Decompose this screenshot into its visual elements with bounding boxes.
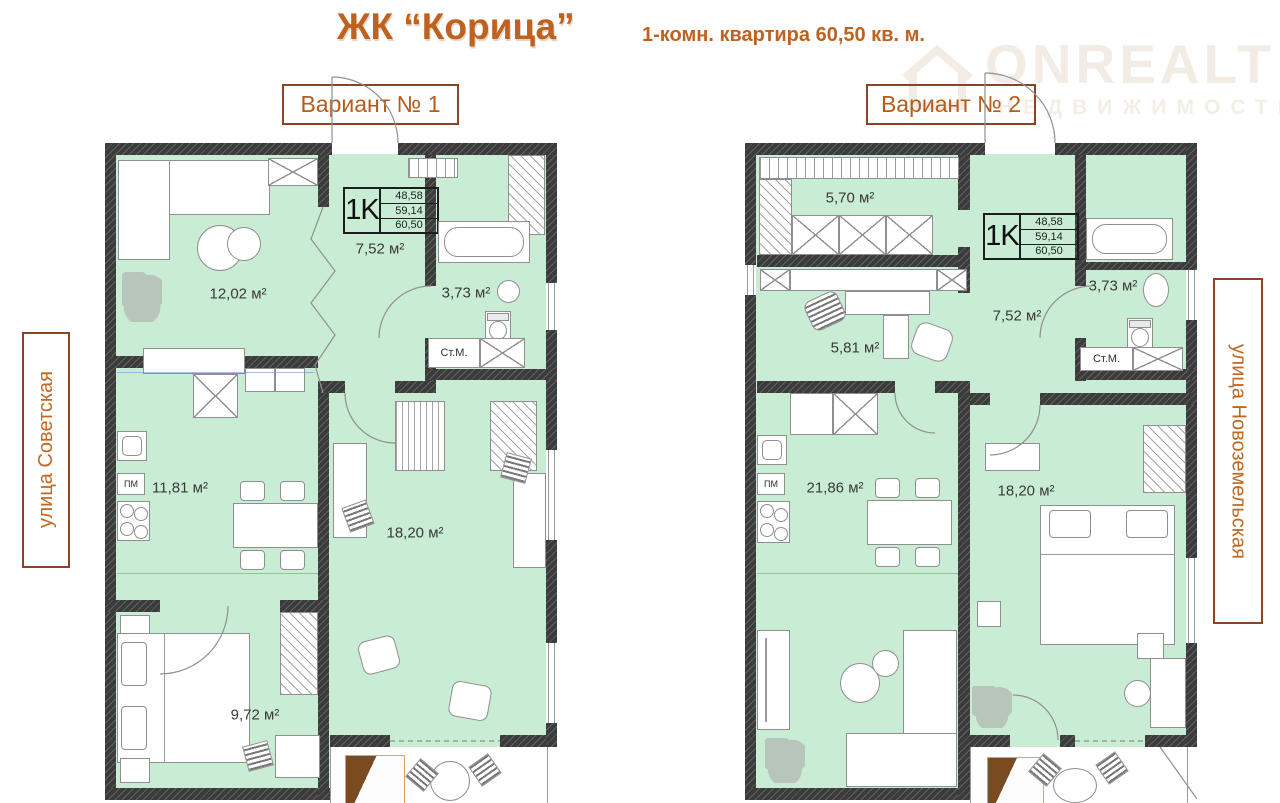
cabinet — [1133, 347, 1183, 371]
window — [745, 265, 756, 295]
blanket-line — [1041, 554, 1174, 555]
pillow — [121, 642, 147, 686]
chair — [240, 550, 265, 570]
wardrobe — [395, 401, 445, 471]
window — [1186, 270, 1197, 320]
wall — [1075, 262, 1197, 270]
variant-1-label-box: Вариант № 1 — [282, 84, 459, 125]
wall — [318, 381, 345, 393]
wall — [757, 381, 895, 393]
room-label-bathroom: 3,73 м² — [1089, 278, 1138, 295]
room-label-kitchen: 11,81 м² — [152, 480, 208, 497]
desk — [513, 473, 546, 568]
wall — [105, 143, 332, 155]
nightstand — [120, 758, 150, 783]
room-label-bedroom: 18,20 м² — [997, 483, 1054, 500]
stove — [757, 501, 790, 543]
wardrobe — [1143, 425, 1186, 493]
burner — [134, 525, 148, 539]
coat-rack — [408, 158, 458, 178]
room-label-room: 18,20 м² — [386, 525, 443, 542]
burner — [120, 522, 134, 536]
section-line — [757, 573, 958, 574]
section-line — [117, 573, 318, 574]
burner — [774, 508, 788, 522]
street-label-left: улица Советская — [22, 332, 70, 568]
cabinet — [937, 269, 967, 291]
cabinet — [760, 269, 790, 291]
desk — [275, 735, 320, 778]
coffee-table — [872, 650, 899, 677]
wardrobe — [280, 612, 318, 695]
balcony-table — [1053, 768, 1097, 803]
closet — [759, 179, 792, 255]
toilet — [1127, 318, 1153, 350]
cabinet — [268, 158, 318, 186]
wall — [105, 600, 160, 612]
plant — [972, 686, 1012, 728]
washing-machine: Ст.М. — [1080, 347, 1133, 371]
cabinet — [480, 338, 525, 368]
window — [1186, 558, 1197, 643]
area-value: 60,50 — [381, 218, 437, 232]
room-label-kitchen-living: 21,86 м² — [806, 480, 863, 497]
dishwasher: ПМ — [757, 473, 785, 495]
wardrobe — [792, 215, 839, 255]
chair — [280, 481, 305, 501]
tv-stand — [757, 630, 790, 730]
cabinet — [985, 443, 1040, 471]
variant-1-label: Вариант № 1 — [300, 91, 440, 118]
chair — [915, 547, 940, 567]
wardrobe — [886, 215, 933, 255]
wall — [105, 143, 116, 800]
blanket-line — [164, 634, 165, 762]
wall — [1060, 735, 1075, 747]
room-label-office: 5,81 м² — [831, 340, 880, 357]
street-right-text: улица Новоземельская — [1227, 344, 1250, 559]
wall — [1186, 143, 1197, 747]
wall — [958, 155, 970, 210]
street-label-right: улица Новоземельская — [1213, 278, 1263, 624]
room-label-bedroom: 9,72 м² — [231, 707, 280, 724]
wall — [970, 393, 990, 405]
kitchen-counter — [143, 348, 245, 374]
wall — [757, 255, 958, 267]
burner — [760, 504, 774, 518]
kitchen-counter — [790, 393, 833, 435]
wall — [935, 381, 970, 393]
floor-plan-variant-1: 1K 48,58 59,14 60,50 Ст.М. ПМ — [105, 143, 557, 803]
apartment-type: 1K — [985, 215, 1021, 258]
wall — [958, 393, 970, 800]
desk — [845, 291, 930, 315]
coat-rack — [759, 157, 959, 179]
floor-plan-variant-2: 1K 48,58 59,14 60,50 Ст.М. ПМ — [745, 143, 1197, 803]
pillow — [1126, 510, 1168, 538]
coffee-table — [227, 227, 261, 261]
floor-plan-sheet: ЖК “Корица” 1-комн. квартира 60,50 кв. м… — [0, 0, 1280, 803]
plant — [765, 738, 805, 783]
apartment-type: 1K — [345, 189, 381, 232]
cabinet — [833, 393, 878, 435]
room-label-wardrobe-hall: 5,70 м² — [826, 190, 875, 207]
armchair — [447, 680, 493, 722]
pillow — [1049, 510, 1091, 538]
burner — [774, 527, 788, 541]
variant-2-label-box: Вариант № 2 — [866, 84, 1036, 125]
wardrobe — [839, 215, 886, 255]
office-counter — [790, 269, 937, 291]
wall — [105, 356, 143, 368]
wall — [398, 143, 557, 155]
tv-cabinet — [1137, 633, 1164, 659]
chair — [875, 547, 900, 567]
wall — [500, 735, 546, 747]
page-subtitle: 1-комн. квартира 60,50 кв. м. — [642, 24, 925, 47]
dining-table — [233, 503, 318, 548]
burner — [134, 507, 148, 521]
section-line — [117, 372, 315, 373]
burner — [120, 504, 134, 518]
room-label-hall: 7,52 м² — [993, 308, 1042, 325]
wall — [395, 381, 436, 393]
wall — [330, 735, 390, 747]
wall — [745, 143, 756, 800]
sofa — [846, 733, 957, 787]
nightstand — [977, 601, 1001, 627]
area-value: 59,14 — [1021, 229, 1077, 243]
wall — [280, 600, 329, 612]
kitchen-sink — [117, 431, 147, 461]
window — [546, 643, 557, 723]
bed — [1040, 505, 1175, 645]
tv-line — [765, 638, 767, 722]
wall — [1055, 143, 1197, 155]
area-value: 59,14 — [381, 203, 437, 217]
burner — [760, 523, 774, 537]
area-value: 48,58 — [381, 189, 437, 203]
wall — [245, 356, 318, 368]
room-label-bathroom: 3,73 м² — [442, 285, 491, 302]
kitchen-sink — [757, 435, 787, 465]
balcony-table — [430, 761, 470, 801]
chair — [240, 481, 265, 501]
wall — [1040, 393, 1197, 405]
washbasin — [497, 280, 520, 303]
wall — [745, 788, 970, 800]
wall — [745, 143, 985, 155]
apartment-info-box: 1K 48,58 59,14 60,50 — [343, 187, 439, 234]
chair — [915, 478, 940, 498]
bathtub — [1086, 218, 1173, 260]
area-value: 60,50 — [1021, 244, 1077, 258]
wall — [970, 735, 1010, 747]
street-left-text: улица Советская — [35, 371, 58, 528]
balcony-marker — [345, 755, 405, 803]
window — [546, 283, 557, 330]
plant — [122, 272, 162, 322]
wall — [1145, 735, 1186, 747]
onrealt-tagline: НЕДВИЖИМОСТЬ — [998, 96, 1280, 120]
chair — [280, 550, 305, 570]
desk — [883, 315, 909, 359]
room-label-living: 12,02 м² — [209, 286, 266, 303]
window — [546, 450, 557, 540]
area-value: 48,58 — [1021, 215, 1077, 229]
dining-table — [867, 500, 952, 545]
bathtub — [438, 221, 530, 263]
chair — [875, 478, 900, 498]
dishwasher: ПМ — [117, 473, 145, 495]
cabinet — [193, 374, 238, 418]
wall — [425, 369, 557, 380]
stove — [117, 501, 150, 541]
washing-machine: Ст.М. — [428, 338, 480, 368]
washbasin — [1143, 273, 1169, 307]
sofa — [118, 160, 170, 260]
variant-2-label: Вариант № 2 — [881, 91, 1021, 118]
room-label-hall: 7,52 м² — [356, 241, 405, 258]
page-title: ЖК “Корица” — [337, 6, 575, 48]
apartment-info-box: 1K 48,58 59,14 60,50 — [983, 213, 1079, 260]
wall — [318, 155, 329, 207]
chair — [1124, 680, 1151, 707]
bed — [117, 633, 250, 763]
pillow — [121, 706, 147, 750]
wall — [105, 788, 330, 800]
desk — [1150, 658, 1186, 728]
